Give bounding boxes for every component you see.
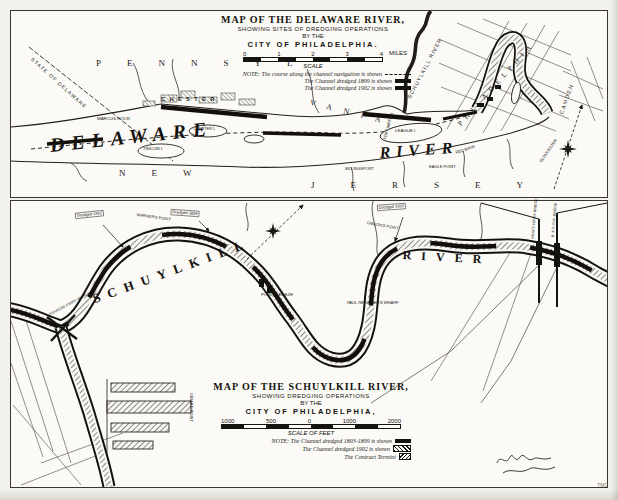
note-line: The Channel dredged 1899 is shown <box>215 78 411 84</box>
scale-tick: 2000 <box>388 418 401 424</box>
delaware-notes: NOTE: The course along the channel navig… <box>215 71 411 91</box>
point-breeze-label: POINT BREEZE <box>261 293 293 297</box>
scale-tick: 1 <box>277 51 280 57</box>
compass-rose-icon <box>247 205 303 259</box>
schuylkill-title-block: MAP OF THE SCHUYLKILL RIVER, SHOWING DRE… <box>171 381 451 460</box>
note-line: The Contract Termini <box>211 453 411 460</box>
sheet-corner-mark: TMC <box>597 483 607 488</box>
schuylkill-map-subtitle: SHOWING DREDGING OPERATIONS <box>171 393 451 399</box>
delaware-map-subtitle: SHOWING SITES OF DREDGING OPERATIONS <box>203 26 423 32</box>
delaware-map-title: MAP OF THE DELAWARE RIVER, <box>203 14 423 25</box>
state-label-new-jersey-1: NEW <box>119 169 218 178</box>
scale-tick: 1000 <box>343 418 356 424</box>
marcus-hook-label: MARCUS HOOK <box>97 117 130 121</box>
scale-tick: 1000 <box>221 418 234 424</box>
delaware-map-panel: MAP OF THE DELAWARE RIVER, SHOWING SITES… <box>10 10 608 198</box>
chester-label: CHESTER <box>161 97 219 103</box>
compass-rose-icon <box>554 105 582 189</box>
dashed-line-swatch <box>385 74 411 75</box>
note-line: The Channel dredged 1902 is shown <box>215 85 411 91</box>
scale-bar-line <box>221 424 401 429</box>
schuylkill-map-title: MAP OF THE SCHUYLKILL RIVER, <box>171 381 451 392</box>
scanned-map-sheet: MAP OF THE DELAWARE RIVER, SHOWING SITES… <box>0 0 618 500</box>
scale-caption: SCALE OF FEET <box>171 430 451 436</box>
contract-termini-swatch <box>399 453 411 460</box>
schuylkill-map-byline: BY THE <box>171 400 451 406</box>
note-line: The Channel dredged 1902 is shown <box>211 445 411 452</box>
delaware-map-byline: BY THE <box>203 33 423 39</box>
redingers-wharf-label: PAUL REDINGER'S WHARF <box>347 301 399 305</box>
scale-tick: 0 <box>243 51 246 57</box>
schuylkill-notes: NOTE: The Channel dredged 1893-1899 is s… <box>211 438 411 460</box>
camden-street-grid <box>559 57 603 121</box>
schuylkill-map-city-line: CITY OF PHILADELPHIA, <box>171 407 451 416</box>
note-text: The Contract Termini <box>344 454 396 460</box>
scale-tick: 0 <box>308 418 311 424</box>
scale-tick: 500 <box>266 418 276 424</box>
tinicum-island-label: TINICUM I. <box>143 147 163 151</box>
river-mouth-branch <box>61 327 109 487</box>
delaware-title-block: MAP OF THE DELAWARE RIVER, SHOWING SITES… <box>203 14 423 91</box>
solid-channel-swatch <box>395 86 411 90</box>
note-line: NOTE: The Channel dredged 1893-1899 is s… <box>211 438 411 444</box>
scale-tick: 3 <box>345 51 348 57</box>
note-line: NOTE: The course along the channel navig… <box>215 71 411 77</box>
note-text: The Channel dredged 1899 is shown <box>304 78 392 84</box>
league-island-label: LEAGUE I. <box>395 129 417 133</box>
schuylkill-map-panel: MAP OF THE SCHUYLKILL RIVER, SHOWING DRE… <box>10 200 608 488</box>
note-text: NOTE: The Channel dredged 1893-1899 is s… <box>272 438 392 444</box>
scale-tick: 2 <box>311 51 314 57</box>
chester-island-label: CHESTER I. <box>193 127 215 131</box>
delaware-scale-bar: 0 1 2 3 4 MILES <box>243 51 383 62</box>
delaware-map-city-line: CITY OF PHILADELPHIA. <box>203 40 423 49</box>
note-text: NOTE: The course along the channel navig… <box>243 71 382 77</box>
scale-unit: MILES <box>389 50 407 56</box>
scale-caption: SCALE <box>203 63 423 69</box>
eagle-point-label: EAGLE POINT <box>429 165 456 169</box>
signature <box>497 455 555 473</box>
note-text: The Channel dredged 1902 is shown <box>302 446 390 452</box>
scale-tick: 4 <box>380 51 383 57</box>
scale-bar-line <box>243 57 383 62</box>
hatched-channel-swatch <box>393 445 411 452</box>
schuylkill-scale-bar: 1000 500 0 1000 2000 <box>221 418 401 429</box>
billingsport-label: BILLINGSPORT <box>345 167 374 171</box>
state-label-new-jersey-2: JERSEY <box>311 181 559 190</box>
solid-channel-swatch <box>395 79 411 83</box>
note-text: The Channel dredged 1902 is shown <box>304 85 392 91</box>
solid-channel-swatch <box>395 439 411 443</box>
